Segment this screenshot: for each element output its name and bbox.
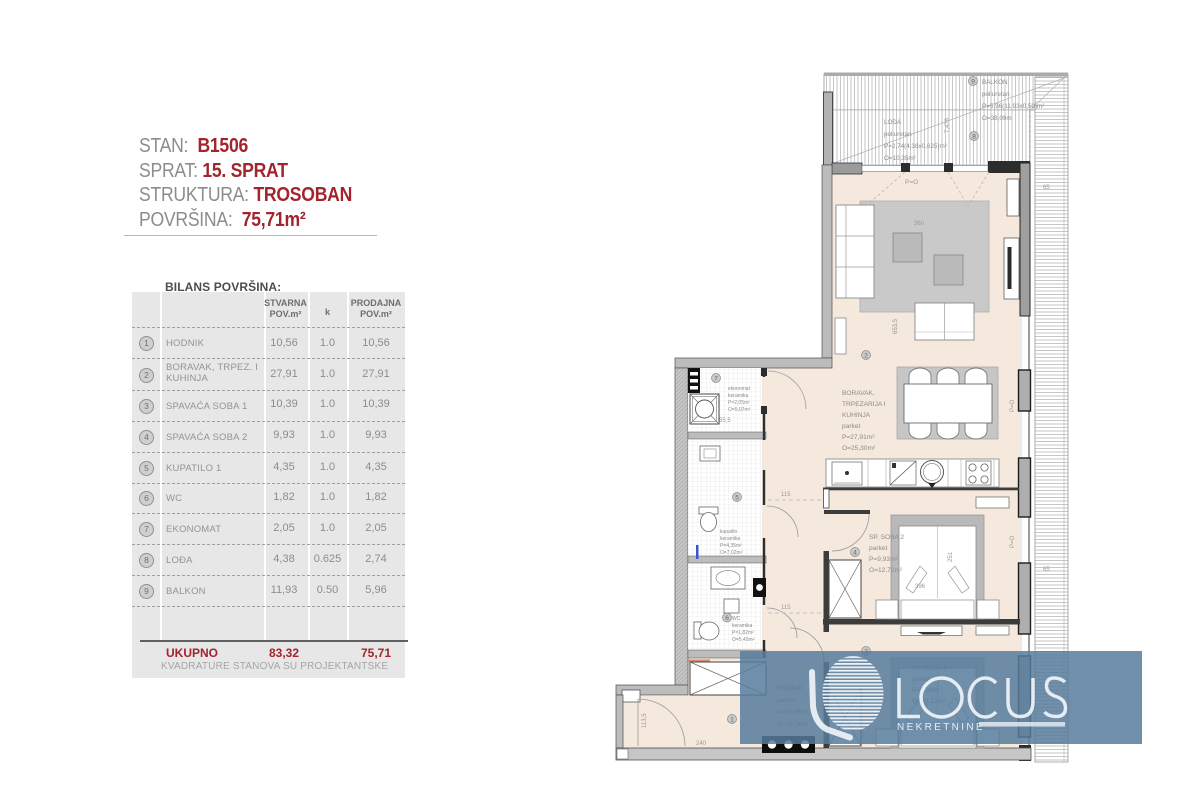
svg-text:251: 251 [948,551,954,562]
svg-text:55,5: 55,5 [719,418,731,424]
svg-text:5: 5 [735,495,739,502]
svg-text:9: 9 [971,79,975,86]
svg-text:240: 240 [696,741,707,747]
svg-text:TRPEZARIJA I: TRPEZARIJA I [842,401,886,408]
svg-text:kupatilo: kupatilo [720,529,737,535]
svg-text:115: 115 [781,492,791,498]
svg-text:6: 6 [725,615,729,622]
svg-text:keramika: keramika [720,536,741,542]
svg-text:2: 2 [864,353,868,360]
svg-text:1: 1 [730,717,734,724]
svg-text:8: 8 [972,134,976,141]
svg-text:parket: parket [777,697,795,704]
svg-text:parket: parket [842,423,860,430]
svg-text:HODNIK: HODNIK [777,685,803,692]
svg-text:P=5,96(11,93x0,50)m²: P=5,96(11,93x0,50)m² [982,103,1044,110]
svg-text:P=9,39m: P=9,39m [912,687,939,694]
svg-text:SP. SOBA 1: SP. SOBA 1 [912,665,947,672]
svg-text:396: 396 [915,584,926,590]
svg-text:parket: parket [912,676,930,683]
svg-text:WC: WC [732,616,741,622]
svg-text:65: 65 [1043,567,1050,573]
svg-text:P=O: P=O [1010,399,1016,412]
svg-text:O=7,02m²: O=7,02m² [720,550,743,556]
svg-text:P=27,91m²: P=27,91m² [842,434,875,441]
svg-text:keramika: keramika [728,393,749,399]
svg-text:7,478: 7,478 [945,117,951,133]
svg-text:115: 115 [781,605,791,611]
svg-text:poliuretan: poliuretan [884,131,912,138]
svg-text:O=10,35m²: O=10,35m² [884,155,916,162]
svg-text:LOĐA: LOĐA [884,119,902,126]
svg-text:O=25,30m²: O=25,30m² [842,445,876,452]
svg-text:P=1,82m²: P=1,82m² [732,630,754,636]
svg-text:SP. SOBA 2: SP. SOBA 2 [869,534,904,541]
svg-text:poliuretan: poliuretan [982,91,1010,98]
svg-text:360: 360 [914,221,925,227]
svg-text:P=O: P=O [905,179,918,186]
svg-text:P=2,74(4,38x0,625)m²: P=2,74(4,38x0,625)m² [884,143,947,150]
svg-text:parket: parket [869,545,887,552]
svg-text:P=2,05m²: P=2,05m² [728,400,750,406]
svg-text:113,5: 113,5 [642,713,648,728]
svg-text:65: 65 [1043,185,1050,191]
svg-text:O=13,17m²: O=13,17m² [912,698,946,705]
svg-text:P=9,93m²: P=9,93m² [869,556,899,563]
svg-text:653,5: 653,5 [893,318,899,334]
svg-text:7: 7 [714,376,718,383]
svg-text:BORAVAK,: BORAVAK, [842,390,875,397]
svg-text:4: 4 [853,550,857,557]
svg-text:P=4,35m²: P=4,35m² [720,543,742,549]
svg-text:P=O: P=O [1010,535,1016,548]
svg-text:keramika: keramika [732,623,753,629]
svg-text:O=15,36m: O=15,36m [777,721,808,728]
svg-text:BALKON: BALKON [982,79,1008,86]
svg-text:O=5,07m²: O=5,07m² [728,407,751,413]
svg-text:3: 3 [864,649,868,656]
svg-text:O=12,72m²: O=12,72m² [869,567,903,574]
svg-text:ekonomat: ekonomat [728,386,751,392]
svg-text:P=10,56m: P=10,56m [777,709,808,716]
svg-text:O=38,09m: O=38,09m [982,115,1012,122]
svg-text:KUHINJA: KUHINJA [842,412,871,419]
svg-text:O=5,43m²: O=5,43m² [732,637,755,643]
